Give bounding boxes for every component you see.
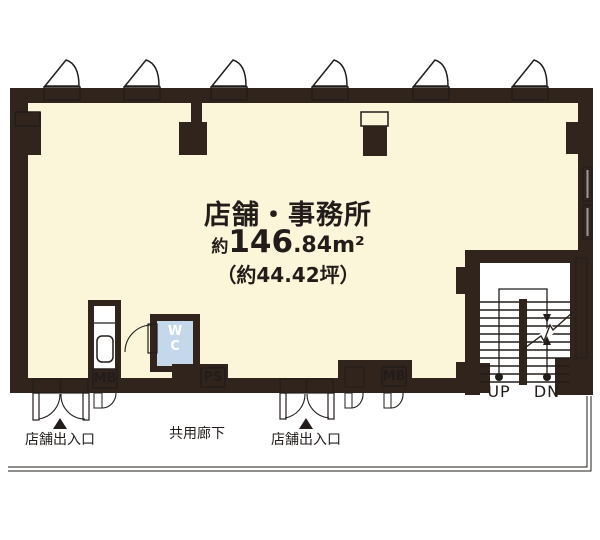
wall-top	[10, 88, 593, 103]
area-prefix: 約	[211, 237, 228, 257]
service-door-arc	[352, 393, 363, 408]
area-decimal: .84	[293, 233, 332, 258]
kitchenette	[88, 300, 121, 408]
stairwell-pillar-lower	[456, 362, 465, 383]
mb-right-door-leaf	[384, 393, 391, 408]
door-leaf	[33, 393, 39, 420]
stair-center-divider	[519, 299, 527, 385]
room-area: 約146.84m²	[138, 224, 438, 260]
mb-left-door-arc	[102, 393, 116, 408]
stairwell	[456, 250, 593, 395]
area-unit: m²	[332, 233, 365, 258]
pillar-right-wall	[566, 122, 578, 154]
dn-start-dot	[543, 373, 551, 381]
pillar-center-right	[363, 126, 387, 156]
door-arc	[61, 394, 85, 419]
door-leaf	[280, 393, 286, 419]
door-leaf	[328, 393, 334, 419]
wc-label-line2: C	[157, 339, 193, 354]
door-arc	[307, 394, 329, 418]
entrance-left-label: 店舗出入口	[10, 429, 110, 449]
wc-label: WC	[157, 324, 193, 354]
door-arc	[285, 394, 305, 418]
pillar-center-left	[179, 122, 207, 155]
mb-left-label: MB	[93, 370, 117, 387]
up-start-dot	[495, 373, 503, 381]
stairs-up-label: UP	[483, 382, 515, 401]
stairwell-pillar-upper	[456, 267, 465, 294]
door-leaf	[83, 393, 89, 420]
entrance-marker-triangle	[299, 418, 313, 429]
entrance-right-label: 店舗出入口	[256, 429, 356, 449]
mb-right-door-arc	[391, 393, 403, 408]
mb-left-door-leaf	[94, 393, 102, 408]
area-main: 146	[228, 224, 293, 260]
door-arc	[39, 394, 60, 419]
wall-stem	[191, 103, 202, 124]
wall-left	[10, 88, 28, 393]
ps-label: PS	[201, 369, 225, 386]
wc-label-line1: W	[157, 324, 193, 339]
entrance-marker-triangle	[53, 418, 67, 429]
floorplan-page: { "colors": { "wall": "#31241c", "floor"…	[0, 0, 600, 540]
mb-right-label: MB	[382, 368, 406, 385]
service-door-leaf	[345, 393, 352, 408]
room-area-tsubo: （約44.42坪）	[138, 259, 438, 288]
stairs-dn-label: DN	[530, 382, 564, 401]
corridor-label: 共用廊下	[147, 423, 247, 443]
pillar-left-wall	[28, 112, 41, 155]
